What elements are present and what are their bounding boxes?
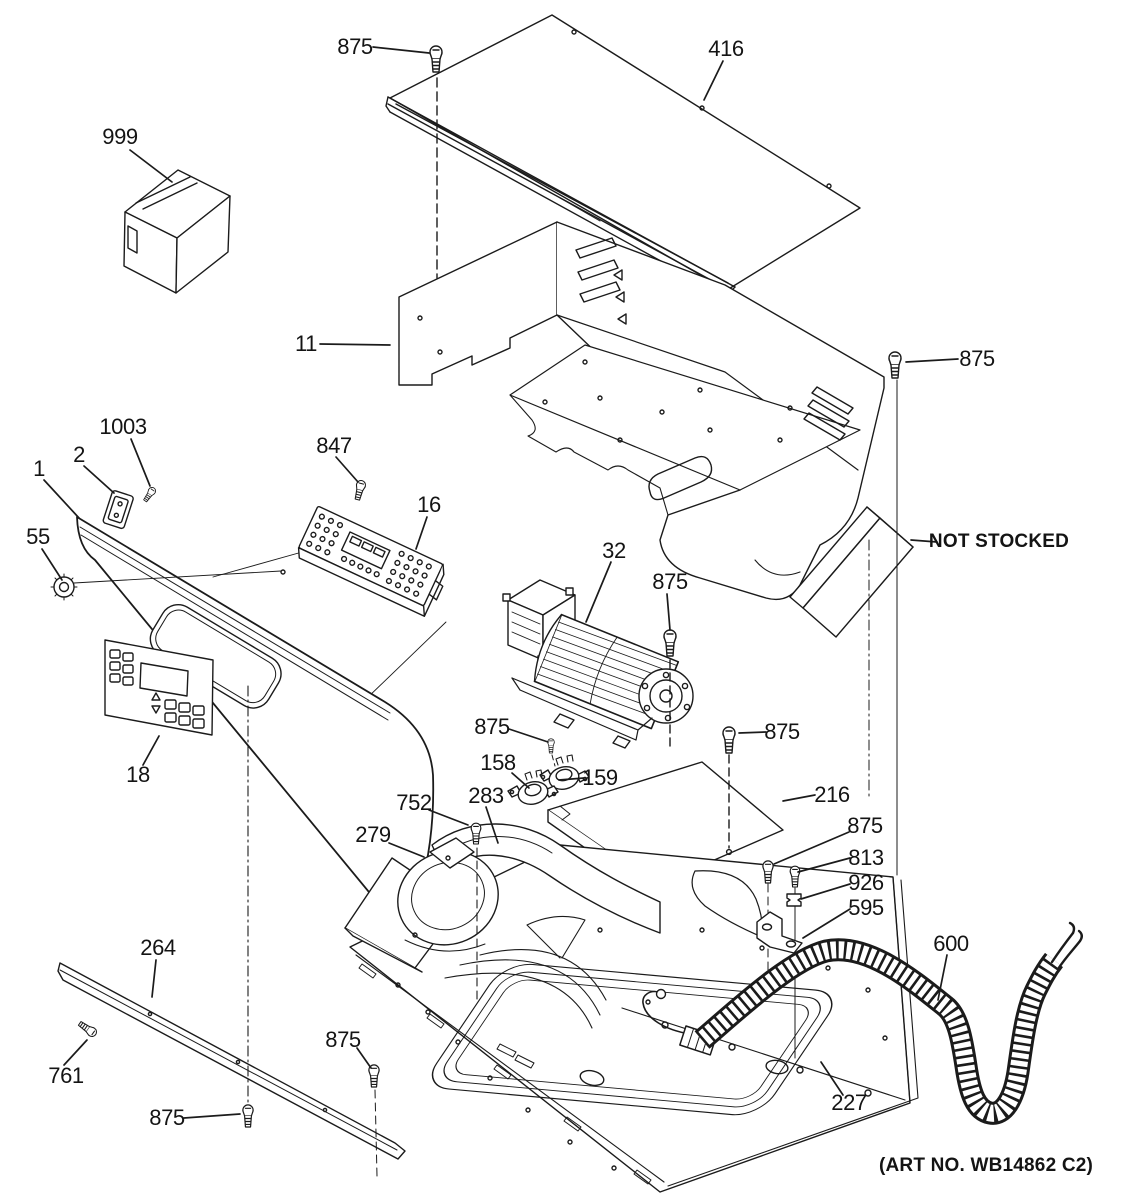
- part-label-32: 32: [602, 538, 626, 564]
- part-label-875-bottom-right: 875: [325, 1027, 361, 1053]
- screw-875-thermostat: [548, 739, 555, 753]
- screw-875-blower: [664, 630, 676, 656]
- part-label-279: 279: [355, 822, 391, 848]
- part-label-875-cover: 875: [764, 719, 800, 745]
- screw-875-bottom-center: [243, 1105, 253, 1127]
- part-label-11: 11: [295, 331, 317, 357]
- screw-761: [77, 1020, 98, 1039]
- part-label-16: 16: [417, 492, 441, 518]
- part-label-813: 813: [848, 845, 884, 871]
- part-label-227: 227: [831, 1090, 867, 1116]
- chassis-11: [399, 222, 884, 599]
- part-label-283: 283: [468, 783, 504, 809]
- part-label-761: 761: [48, 1063, 84, 1089]
- screw-847: [353, 480, 366, 501]
- part-label-159: 159: [582, 765, 618, 791]
- part-label-1: 1: [33, 456, 45, 482]
- part-label-875-blower: 875: [652, 569, 688, 595]
- part-label-216: 216: [814, 782, 850, 808]
- not-stocked-label: NOT STOCKED: [929, 531, 1069, 553]
- part-label-752: 752: [396, 790, 432, 816]
- part-label-18: 18: [126, 762, 150, 788]
- part-label-875-column: 875: [847, 813, 883, 839]
- clip-926: [787, 894, 801, 906]
- part-label-875-bottom-center: 875: [149, 1105, 185, 1131]
- part-label-875-top-right: 875: [959, 346, 995, 372]
- blower-motor-32: [503, 580, 693, 748]
- screw-875-top-right: [889, 352, 901, 378]
- front-rail-264: [58, 963, 405, 1159]
- diagram-canvas: [0, 0, 1125, 1200]
- part-label-55: 55: [26, 524, 50, 550]
- part-label-926: 926: [848, 870, 884, 896]
- nut-55: [51, 574, 77, 600]
- part-label-158: 158: [480, 750, 516, 776]
- screw-875-top-left: [430, 46, 442, 72]
- exploded-parts-diagram: 9998754168751110032847161553287518875158…: [0, 0, 1125, 1200]
- part-label-595: 595: [848, 895, 884, 921]
- literature-box-999: [124, 170, 230, 293]
- part-label-875-thermostat: 875: [474, 714, 510, 740]
- part-label-264: 264: [140, 935, 176, 961]
- part-label-600: 600: [933, 931, 969, 957]
- clip-2: [102, 490, 133, 529]
- part-label-2: 2: [73, 442, 85, 468]
- part-label-416: 416: [708, 36, 744, 62]
- part-label-875-top-left: 875: [337, 34, 373, 60]
- screw-1003: [142, 486, 157, 503]
- part-label-999: 999: [102, 124, 138, 150]
- screw-875-cover: [723, 727, 735, 753]
- art-number-label: (ART NO. WB14862 C2): [879, 1155, 1093, 1177]
- part-label-847: 847: [316, 433, 352, 459]
- part-label-1003: 1003: [99, 414, 146, 440]
